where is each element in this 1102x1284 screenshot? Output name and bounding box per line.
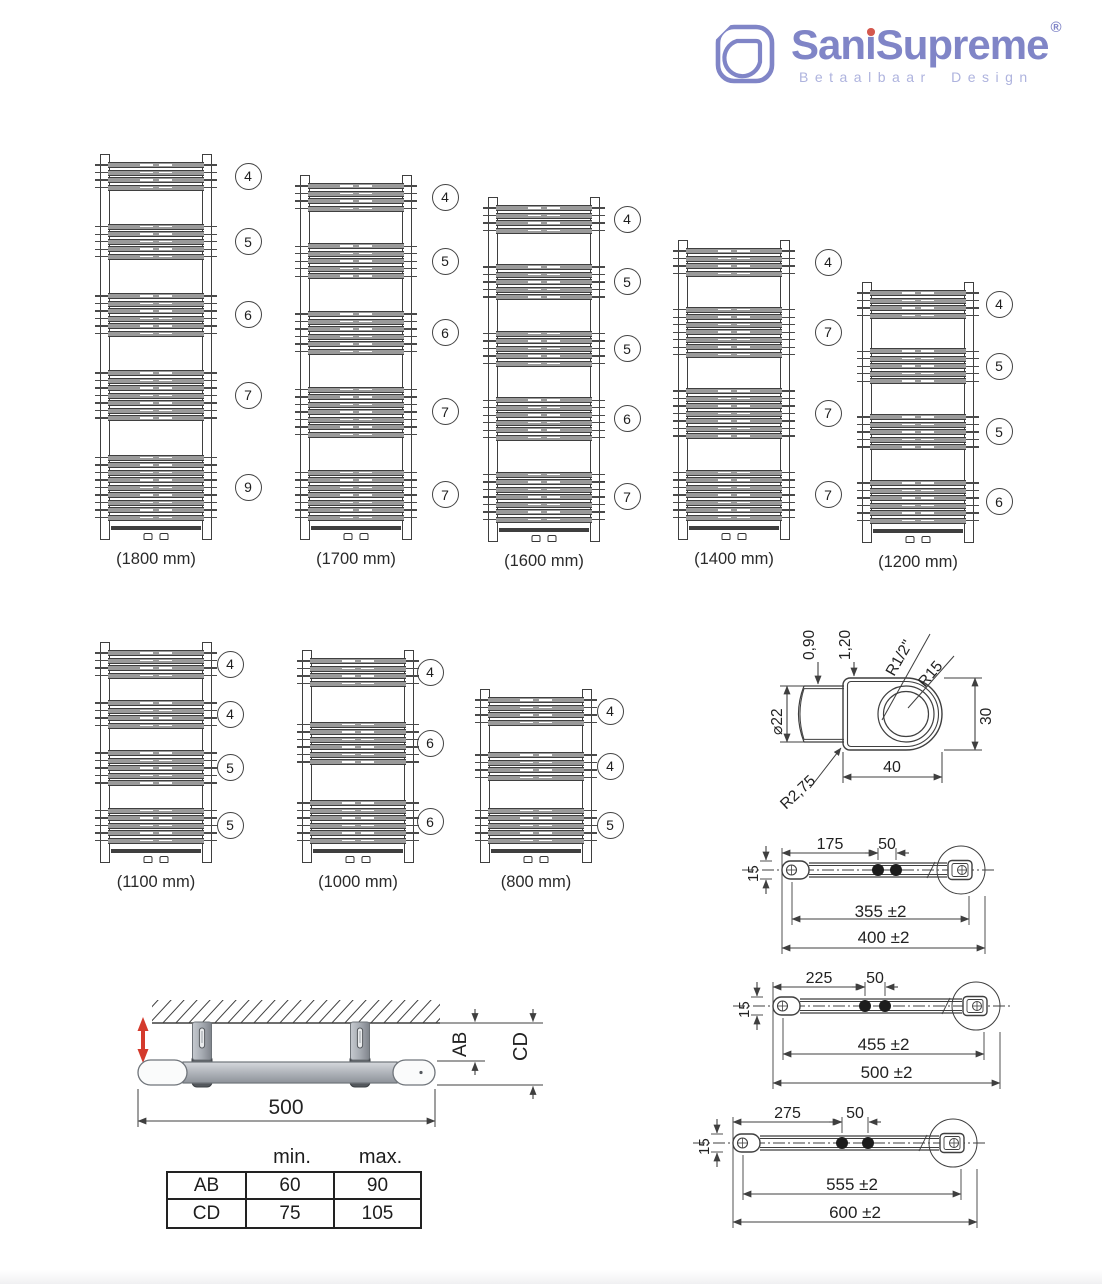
rail-bar bbox=[310, 673, 406, 679]
towel-rail bbox=[857, 503, 979, 509]
towel-rail bbox=[295, 243, 417, 249]
bar-dimension-drawing: 1755015355 ±2400 ±2 bbox=[724, 831, 1049, 962]
rail-bar bbox=[686, 263, 782, 269]
rail-bar bbox=[686, 403, 782, 409]
dim-label: 15 bbox=[696, 1138, 713, 1155]
towel-rail bbox=[673, 515, 795, 521]
towel-rail bbox=[95, 708, 217, 714]
towel-rail bbox=[295, 507, 417, 513]
rail-count-badge: 5 bbox=[432, 248, 459, 275]
line-part bbox=[408, 999, 432, 1025]
towel-rail bbox=[857, 437, 979, 443]
towel-rail bbox=[295, 432, 417, 438]
rail-bar bbox=[488, 760, 584, 766]
towel-rail bbox=[297, 823, 419, 829]
rail-count-badge: 4 bbox=[235, 163, 262, 190]
towel-rail bbox=[295, 273, 417, 279]
towel-rail bbox=[483, 487, 605, 493]
towel-rail bbox=[673, 418, 795, 424]
rail-bar bbox=[496, 502, 592, 508]
rail-count-badge: 5 bbox=[986, 353, 1013, 380]
towel-rail bbox=[95, 507, 217, 513]
rail-bar bbox=[108, 415, 204, 421]
towel-rail bbox=[295, 198, 417, 204]
towel-rail bbox=[95, 650, 217, 656]
rail-bar bbox=[686, 352, 782, 358]
bottom-collector bbox=[111, 526, 201, 530]
rail-count-badge: 5 bbox=[217, 812, 244, 839]
rail-bar bbox=[496, 361, 592, 367]
rail-bar bbox=[496, 205, 592, 211]
towel-rail bbox=[475, 752, 597, 758]
rail-bar bbox=[488, 712, 584, 718]
rail-bar bbox=[870, 480, 966, 486]
dim-label: 15 bbox=[736, 1001, 753, 1018]
rail-bar bbox=[488, 808, 584, 814]
valve-connections bbox=[144, 533, 169, 540]
rail-bar bbox=[108, 838, 204, 844]
rail-bar bbox=[308, 191, 404, 197]
towel-rail bbox=[95, 838, 217, 844]
radiator-figure: 45679(1800 mm) bbox=[100, 157, 268, 574]
brand-name: SanıSupreme® bbox=[791, 24, 1061, 66]
towel-rail bbox=[95, 500, 217, 506]
towel-rail bbox=[857, 444, 979, 450]
rail-bar bbox=[308, 424, 404, 430]
towel-rail bbox=[673, 307, 795, 313]
circle-part bbox=[884, 692, 929, 737]
radiator-label: (1100 mm) bbox=[88, 873, 224, 892]
rail-count-badge: 7 bbox=[815, 319, 842, 346]
rail-bar bbox=[108, 723, 204, 729]
radiator-figure: 4777(1400 mm) bbox=[678, 243, 848, 574]
rail-count-badge: 7 bbox=[815, 481, 842, 508]
towel-rail bbox=[295, 206, 417, 212]
rail-bar bbox=[496, 420, 592, 426]
valve-connections bbox=[346, 856, 371, 863]
rail-count-badge: 5 bbox=[217, 754, 244, 781]
rail-bar bbox=[108, 323, 204, 329]
towel-rail bbox=[95, 239, 217, 245]
towel-rail bbox=[673, 507, 795, 513]
line-part bbox=[369, 999, 393, 1025]
rail-bar bbox=[686, 314, 782, 320]
towel-rail bbox=[95, 185, 217, 191]
towel-rail bbox=[857, 488, 979, 494]
dim-wall2: 1,20 bbox=[837, 629, 854, 660]
towel-rail bbox=[475, 767, 597, 773]
rail-bar bbox=[108, 316, 204, 322]
rail-bar bbox=[108, 673, 204, 679]
towel-rail bbox=[483, 509, 605, 515]
towel-rail bbox=[297, 752, 419, 758]
rail-bar bbox=[108, 708, 204, 714]
line-part bbox=[135, 999, 159, 1025]
towel-rail bbox=[95, 477, 217, 483]
radiator-body bbox=[302, 653, 414, 863]
towel-rail bbox=[295, 485, 417, 491]
rail-bar bbox=[496, 405, 592, 411]
line-part bbox=[252, 999, 276, 1025]
rail-bar bbox=[108, 500, 204, 506]
mount-dot bbox=[879, 1000, 891, 1012]
table-header-max: max. bbox=[337, 1146, 424, 1169]
towel-rail bbox=[673, 403, 795, 409]
rail-bar bbox=[108, 830, 204, 836]
towel-rail bbox=[857, 356, 979, 362]
towel-bar bbox=[183, 1062, 397, 1083]
rail-count-badge: 5 bbox=[614, 335, 641, 362]
rail-bar bbox=[308, 183, 404, 189]
rail-bar bbox=[488, 767, 584, 773]
rail-bar bbox=[686, 337, 782, 343]
towel-rail bbox=[483, 213, 605, 219]
radiator-label: (1400 mm) bbox=[666, 550, 802, 569]
radiator-body bbox=[678, 243, 790, 540]
line-part bbox=[213, 999, 237, 1025]
radiator-label: (800 mm) bbox=[468, 873, 604, 892]
towel-rail bbox=[673, 492, 795, 498]
towel-rail bbox=[297, 830, 419, 836]
towel-rail bbox=[295, 417, 417, 423]
towel-rail bbox=[297, 673, 419, 679]
towel-rail bbox=[483, 264, 605, 270]
line-part bbox=[239, 999, 263, 1025]
towel-rail bbox=[483, 205, 605, 211]
rail-bar bbox=[496, 338, 592, 344]
towel-rail bbox=[295, 492, 417, 498]
rail-bar bbox=[308, 394, 404, 400]
rail-bar bbox=[870, 437, 966, 443]
rail-bar bbox=[310, 815, 406, 821]
line-part bbox=[148, 999, 172, 1025]
mount-dot bbox=[862, 1137, 874, 1149]
rail-bar bbox=[108, 393, 204, 399]
rail-bar bbox=[308, 477, 404, 483]
rail-bar bbox=[488, 830, 584, 836]
towel-rail bbox=[295, 477, 417, 483]
towel-rail bbox=[295, 424, 417, 430]
dim-diameter: ⌀22 bbox=[770, 708, 786, 735]
towel-rail bbox=[295, 326, 417, 332]
radiator-body bbox=[100, 157, 212, 540]
brand-text: SanıSupreme® Betaalbaar Design bbox=[791, 22, 1061, 85]
rail-bar bbox=[870, 414, 966, 420]
rail-bar bbox=[108, 462, 204, 468]
rail-bar bbox=[308, 319, 404, 325]
valve-icon bbox=[548, 535, 557, 542]
rail-bar bbox=[310, 658, 406, 664]
rail-bar bbox=[310, 722, 406, 728]
bottom-collector bbox=[499, 528, 589, 532]
radiator-body bbox=[100, 645, 212, 863]
towel-rail bbox=[297, 737, 419, 743]
towel-rail bbox=[95, 455, 217, 461]
rail-bar bbox=[108, 470, 204, 476]
towel-rail bbox=[297, 815, 419, 821]
spec-table: min. max. AB 60 90 CD 75 105 bbox=[166, 1144, 424, 1229]
radiator-body bbox=[488, 200, 600, 542]
span-part: ı bbox=[865, 24, 876, 66]
rail-bar bbox=[308, 341, 404, 347]
dim-label: 355 ±2 bbox=[855, 902, 907, 921]
rail-bar bbox=[870, 378, 966, 384]
towel-rail bbox=[295, 500, 417, 506]
brand-logo: SanıSupreme® Betaalbaar Design bbox=[713, 22, 1061, 86]
rail-bar bbox=[308, 273, 404, 279]
towel-rail bbox=[857, 305, 979, 311]
towel-rail bbox=[483, 361, 605, 367]
towel-rail bbox=[673, 388, 795, 394]
rail-count-badge: 7 bbox=[815, 400, 842, 427]
path-part bbox=[848, 682, 939, 747]
rail-bar bbox=[870, 298, 966, 304]
rail-bar bbox=[108, 658, 204, 664]
rail-bar bbox=[488, 838, 584, 844]
tube-profile-drawing: 0,90 1,20 R1/2" R15 ⌀22 30 40 R2,75 bbox=[770, 620, 1080, 820]
line-part bbox=[200, 999, 224, 1025]
rail-count-badge: 6 bbox=[432, 319, 459, 346]
line-part bbox=[421, 999, 445, 1025]
radiator-figure: 466(1000 mm) bbox=[302, 653, 450, 897]
towel-rail bbox=[673, 470, 795, 476]
valve-icon bbox=[532, 535, 541, 542]
towel-rail bbox=[483, 435, 605, 441]
rail-bar bbox=[870, 444, 966, 450]
dim-label: 225 bbox=[806, 970, 833, 987]
towel-rail bbox=[95, 385, 217, 391]
dim-thread: R1/2" bbox=[883, 637, 917, 679]
towel-rail bbox=[475, 775, 597, 781]
radiator-figure: 45567(1600 mm) bbox=[488, 200, 647, 576]
rail-bar bbox=[108, 239, 204, 245]
spec-table-header: min. max. bbox=[166, 1144, 424, 1171]
rail-bar bbox=[108, 177, 204, 183]
towel-rail bbox=[95, 393, 217, 399]
towel-rail bbox=[673, 352, 795, 358]
rail-bar bbox=[308, 243, 404, 249]
rail-count-badge: 9 bbox=[235, 474, 262, 501]
rail-bar bbox=[108, 293, 204, 299]
table-header-min: min. bbox=[247, 1146, 337, 1169]
rail-bar bbox=[308, 198, 404, 204]
rail-count-badge: 7 bbox=[235, 382, 262, 409]
rail-bar bbox=[308, 492, 404, 498]
rail-bar bbox=[686, 256, 782, 262]
towel-rail bbox=[95, 715, 217, 721]
towel-rail bbox=[483, 479, 605, 485]
rail-bar bbox=[308, 349, 404, 355]
rail-count-badge: 4 bbox=[217, 701, 244, 728]
towel-rail bbox=[95, 331, 217, 337]
valve-connections bbox=[144, 856, 169, 863]
towel-rail bbox=[295, 266, 417, 272]
towel-rail bbox=[483, 517, 605, 523]
dim-label: 500 ±2 bbox=[861, 1063, 913, 1082]
rail-bar bbox=[310, 737, 406, 743]
towel-rail bbox=[483, 220, 605, 226]
rail-bar bbox=[310, 729, 406, 735]
rail-bar bbox=[108, 246, 204, 252]
rail-bar bbox=[108, 308, 204, 314]
rail-bar bbox=[108, 515, 204, 521]
towel-rail bbox=[483, 294, 605, 300]
rail-bar bbox=[496, 494, 592, 500]
bottom-collector bbox=[873, 529, 963, 533]
rail-bar bbox=[496, 331, 592, 337]
table-cell: 105 bbox=[335, 1200, 420, 1227]
rail-bar bbox=[496, 287, 592, 293]
towel-rail bbox=[295, 258, 417, 264]
towel-rail bbox=[673, 433, 795, 439]
line-part bbox=[291, 999, 315, 1025]
rail-bar bbox=[496, 509, 592, 515]
valve-icon bbox=[906, 536, 915, 543]
towel-rail bbox=[95, 823, 217, 829]
rail-bar bbox=[496, 472, 592, 478]
rail-count-badge: 4 bbox=[815, 249, 842, 276]
valve-icon bbox=[722, 533, 731, 540]
towel-rail bbox=[295, 191, 417, 197]
end-cap bbox=[393, 1060, 435, 1085]
bar-dimension-drawing: 2755015555 ±2600 ±2 bbox=[675, 1100, 1041, 1236]
rail-count-badge: 4 bbox=[614, 206, 641, 233]
dim-label: 50 bbox=[866, 970, 884, 987]
line-part bbox=[447, 999, 471, 1025]
radiator-label: (1200 mm) bbox=[850, 553, 986, 572]
rail-bar bbox=[310, 838, 406, 844]
rail-bar bbox=[310, 752, 406, 758]
circle-part bbox=[419, 1071, 422, 1074]
towel-rail bbox=[95, 231, 217, 237]
rail-bar bbox=[308, 402, 404, 408]
towel-rail bbox=[857, 422, 979, 428]
rail-bar bbox=[496, 272, 592, 278]
brand-tagline: Betaalbaar Design bbox=[791, 69, 1061, 85]
rail-bar bbox=[108, 254, 204, 260]
towel-rail bbox=[95, 665, 217, 671]
rail-bar bbox=[686, 388, 782, 394]
rail-count-badge: 6 bbox=[417, 808, 444, 835]
dim-label: 175 bbox=[817, 836, 844, 853]
rail-count-badge: 4 bbox=[597, 698, 624, 725]
rail-bar bbox=[310, 808, 406, 814]
rail-bar bbox=[108, 507, 204, 513]
rail-bar bbox=[488, 823, 584, 829]
valve-icon bbox=[738, 533, 747, 540]
towel-rail bbox=[95, 293, 217, 299]
page-bottom-fade bbox=[0, 1270, 1102, 1284]
valve-connections bbox=[532, 535, 557, 542]
radiator-body bbox=[480, 692, 592, 863]
line-part bbox=[174, 999, 198, 1025]
rail-bar bbox=[108, 385, 204, 391]
rail-count-badge: 6 bbox=[986, 488, 1013, 515]
rail-count-badge: 6 bbox=[235, 301, 262, 328]
towel-rail bbox=[483, 502, 605, 508]
rail-bar bbox=[686, 322, 782, 328]
rail-bar bbox=[686, 271, 782, 277]
rail-bar bbox=[108, 162, 204, 168]
dim-wall1: 0,90 bbox=[801, 629, 818, 660]
towel-rail bbox=[295, 311, 417, 317]
table-cell: 60 bbox=[247, 1173, 335, 1200]
towel-rail bbox=[295, 394, 417, 400]
rail-bar bbox=[308, 500, 404, 506]
valve-icon bbox=[160, 533, 169, 540]
rail-bar bbox=[496, 412, 592, 418]
rail-bar bbox=[870, 290, 966, 296]
valve-icon bbox=[144, 856, 153, 863]
rail-bar bbox=[870, 488, 966, 494]
towel-rail bbox=[295, 183, 417, 189]
towel-rail bbox=[483, 228, 605, 234]
line-part bbox=[330, 999, 354, 1025]
towel-rail bbox=[857, 298, 979, 304]
mount-dot bbox=[890, 864, 902, 876]
rail-bar bbox=[108, 378, 204, 384]
rail-count-badge: 6 bbox=[614, 405, 641, 432]
towel-rail bbox=[95, 170, 217, 176]
towel-rail bbox=[857, 518, 979, 524]
rail-bar bbox=[496, 353, 592, 359]
towel-rail bbox=[95, 415, 217, 421]
rail-bar bbox=[488, 752, 584, 758]
towel-rail bbox=[295, 402, 417, 408]
towel-rail bbox=[857, 363, 979, 369]
rail-bar bbox=[310, 744, 406, 750]
rail-bar bbox=[308, 206, 404, 212]
towel-rail bbox=[95, 673, 217, 679]
towel-rail bbox=[475, 815, 597, 821]
radiator-body bbox=[862, 285, 974, 543]
towel-rail bbox=[295, 341, 417, 347]
bottom-collector bbox=[689, 526, 779, 530]
registered-mark: ® bbox=[1050, 19, 1060, 36]
towel-rail bbox=[95, 308, 217, 314]
towel-rail bbox=[673, 248, 795, 254]
towel-rail bbox=[475, 697, 597, 703]
rail-bar bbox=[686, 418, 782, 424]
towel-rail bbox=[483, 272, 605, 278]
towel-rail bbox=[95, 254, 217, 260]
rail-bar bbox=[108, 170, 204, 176]
towel-rail bbox=[857, 480, 979, 486]
rail-bar bbox=[108, 700, 204, 706]
rail-bar bbox=[308, 334, 404, 340]
towel-rail bbox=[483, 427, 605, 433]
rail-bar bbox=[108, 331, 204, 337]
rail-bar bbox=[686, 307, 782, 313]
span-part bbox=[867, 28, 875, 36]
towel-rail bbox=[295, 334, 417, 340]
rail-bar bbox=[108, 400, 204, 406]
rail-bar bbox=[686, 396, 782, 402]
rail-bar bbox=[108, 301, 204, 307]
radiator-label: (1000 mm) bbox=[290, 873, 426, 892]
bottom-collector bbox=[491, 849, 581, 853]
rail-bar bbox=[108, 780, 204, 786]
rail-bar bbox=[108, 808, 204, 814]
line-part bbox=[343, 999, 367, 1025]
dim-label: 50 bbox=[846, 1105, 864, 1122]
towel-rail bbox=[95, 492, 217, 498]
towel-rail bbox=[475, 830, 597, 836]
rail-count-badge: 5 bbox=[235, 228, 262, 255]
rail-count-badge: 5 bbox=[597, 812, 624, 839]
line-part bbox=[434, 999, 458, 1025]
rail-bar bbox=[870, 363, 966, 369]
